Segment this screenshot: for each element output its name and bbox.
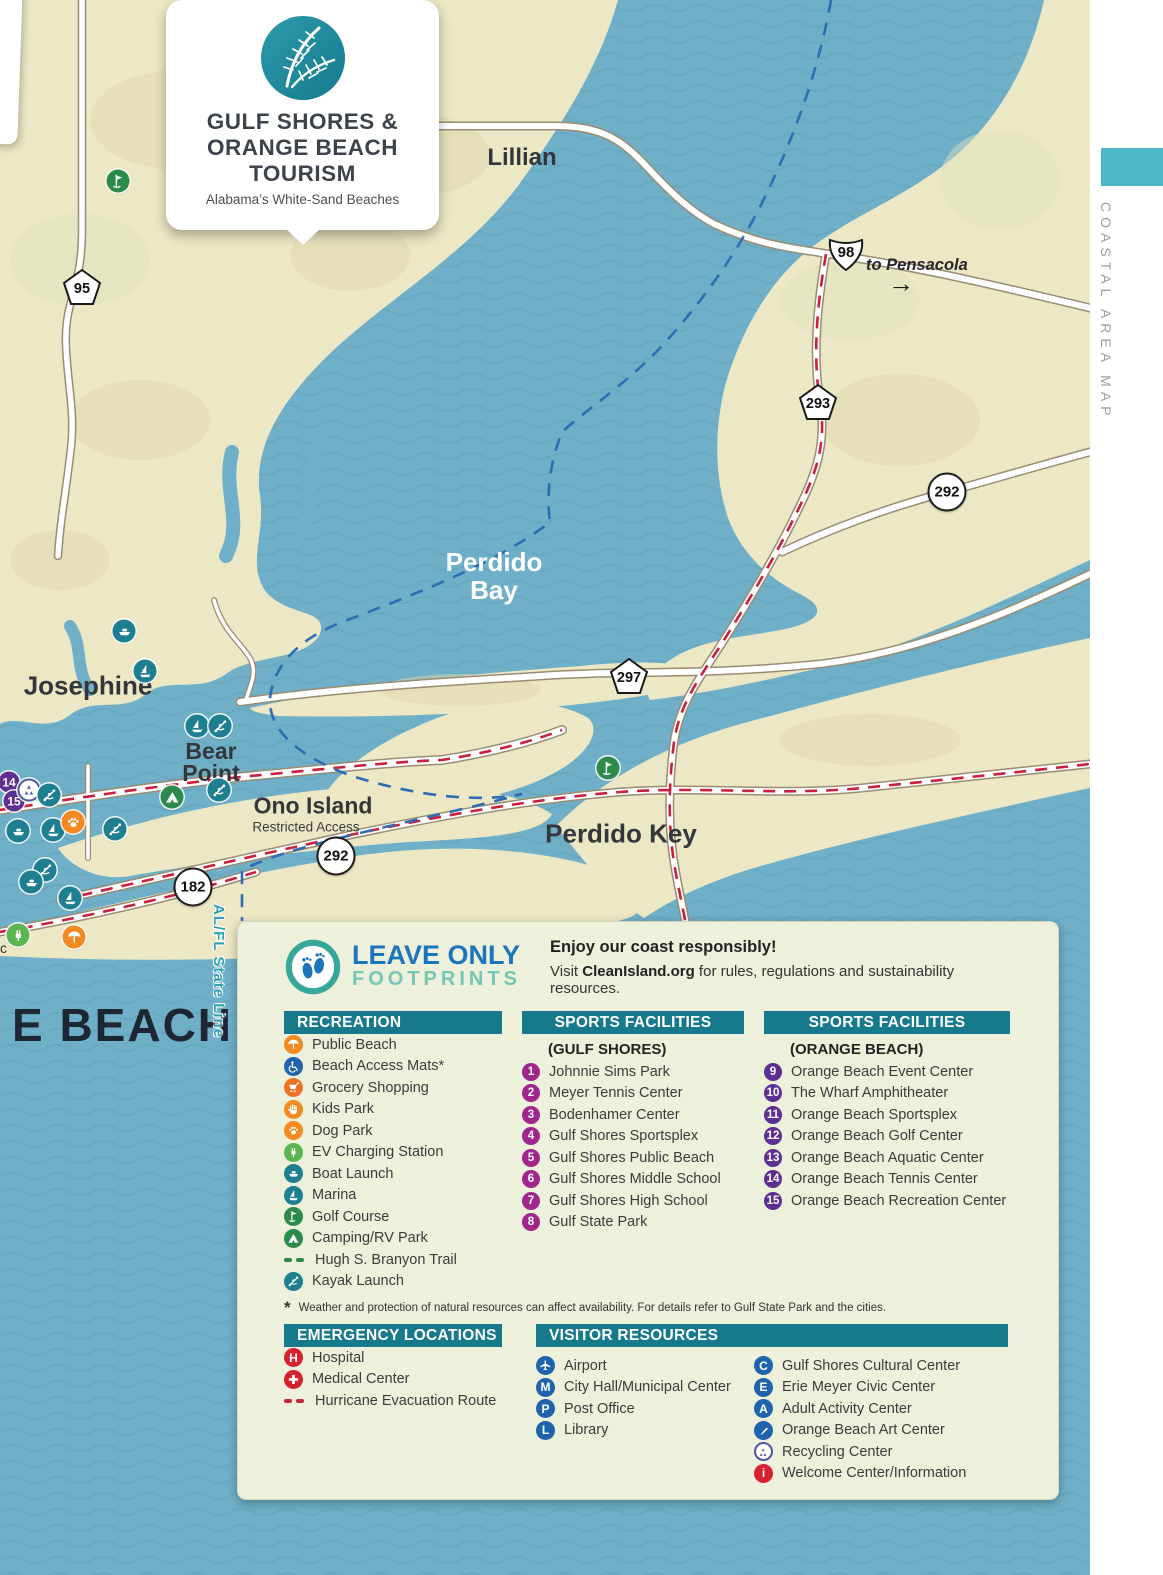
welcome-info-icon: i (754, 1464, 773, 1483)
legend-item: 7Gulf Shores High School (522, 1190, 744, 1212)
marker-2: 2 (522, 1084, 540, 1102)
golf-course-icon (597, 757, 620, 780)
leave-only-footprints-brand: LEAVE ONLY FOOTPRINTS (284, 938, 536, 996)
legend-item: Camping/RV Park (284, 1228, 502, 1250)
legend-section-gulf-shores: SPORTS FACILITIES (GULF SHORES) 1Johnnie… (522, 1011, 744, 1292)
kayak-launch-icon (208, 779, 231, 802)
map-legend-panel: LEAVE ONLY FOOTPRINTS Enjoy our coast re… (237, 921, 1059, 1500)
marker-11: 11 (764, 1106, 782, 1124)
civic-center-icon: E (754, 1378, 773, 1397)
legend-section-orange-beach: SPORTS FACILITIES (ORANGE BEACH) 9Orange… (764, 1011, 1010, 1292)
marker-13: 13 (764, 1149, 782, 1167)
pensacola-arrow-icon: → (888, 268, 914, 299)
legend-item: Medical Center (284, 1369, 502, 1391)
marker-9: 9 (764, 1063, 782, 1081)
legend-item: Golf Course (284, 1206, 502, 1228)
legend-item: 1Johnnie Sims Park (522, 1061, 744, 1083)
kayak-launch-icon (284, 1272, 303, 1291)
marker-12: 12 (764, 1127, 782, 1145)
boat-launch-icon (113, 620, 136, 643)
legend-item: Orange Beach Art Center (754, 1420, 1004, 1442)
legend-item: Hurricane Evacuation Route (284, 1390, 502, 1412)
medical-center-icon (284, 1370, 303, 1389)
legend-item: 9Orange Beach Event Center (764, 1061, 1010, 1083)
marker-10: 10 (764, 1084, 782, 1102)
badge-title-line3: TOURISM (166, 161, 439, 187)
legend-item: AAdult Activity Center (754, 1398, 1004, 1420)
orange-beach-subtitle: (ORANGE BEACH) (790, 1041, 1010, 1058)
legend-item: Boat Launch (284, 1163, 502, 1185)
golf-course-icon (284, 1207, 303, 1226)
legend-item: Recycling Center (754, 1441, 1004, 1463)
route-shield-95: 95 (62, 268, 102, 306)
airport-icon (536, 1356, 555, 1375)
legend-section-emergency: EMERGENCY LOCATIONS HHospital Medical Ce… (284, 1324, 502, 1484)
legend-item: 8Gulf State Park (522, 1212, 744, 1234)
route-shield-292-island: 292 (317, 837, 356, 876)
marina-icon (186, 715, 209, 738)
legend-item: Dog Park (284, 1120, 502, 1142)
brand-line2: FOOTPRINTS (352, 968, 521, 991)
label-ono-island: Ono Island (254, 793, 373, 820)
sea-oats-logo-icon (257, 12, 349, 104)
right-margin: COASTAL AREA MAP (1090, 0, 1163, 1575)
teal-accent-block (1101, 148, 1163, 186)
legend-item: 3Bodenhamer Center (522, 1104, 744, 1126)
library-icon: L (536, 1421, 555, 1440)
cleanisland-link: CleanIsland.org (582, 963, 695, 980)
marina-icon (134, 660, 157, 683)
map-canvas: GULF SHORES & ORANGE BEACH TOURISM Alaba… (0, 0, 1090, 1575)
label-to-pensacola: to Pensacola (866, 256, 968, 275)
gulf-shores-header: SPORTS FACILITIES (522, 1011, 744, 1034)
boat-launch-icon (284, 1164, 303, 1183)
legend-item: Beach Access Mats* (284, 1056, 502, 1078)
city-hall-icon: M (536, 1378, 555, 1397)
hurricane-route-icon (284, 1399, 306, 1403)
camping-rv-icon (284, 1229, 303, 1248)
route-shield-293: 293 (798, 383, 838, 421)
legend-item: Hugh S. Branyon Trail (284, 1249, 502, 1271)
art-center-icon (754, 1421, 773, 1440)
legend-item: EV Charging Station (284, 1142, 502, 1164)
public-beach-icon (63, 926, 86, 949)
public-beach-icon (284, 1035, 303, 1054)
route-shield-297: 297 (609, 657, 649, 695)
marina-icon (59, 887, 82, 910)
label-lillian: Lillian (487, 144, 556, 172)
label-perdido-key: Perdido Key (545, 819, 697, 850)
legend-item: 13Orange Beach Aquatic Center (764, 1147, 1010, 1169)
brand-line1: LEAVE ONLY (352, 942, 521, 968)
legend-intro: Enjoy our coast responsibly! Visit Clean… (550, 938, 1008, 997)
legend-item: CGulf Shores Cultural Center (754, 1355, 1004, 1377)
legend-footnote: * Weather and protection of natural reso… (284, 1302, 1008, 1314)
legend-item: LLibrary (536, 1420, 748, 1442)
label-perdido-bay: Perdido Bay (446, 548, 543, 604)
intro-bold-line: Enjoy our coast responsibly! (550, 938, 1008, 957)
coastal-area-map-page: GULF SHORES & ORANGE BEACH TOURISM Alaba… (0, 0, 1163, 1575)
kids-park-icon (284, 1100, 303, 1119)
coastal-area-map-title: COASTAL AREA MAP (1098, 202, 1114, 421)
branyon-trail-icon (284, 1258, 306, 1262)
marker-7: 7 (522, 1192, 540, 1210)
legend-item: 5Gulf Shores Public Beach (522, 1147, 744, 1169)
badge-title-line2: ORANGE BEACH (166, 135, 439, 161)
recycling-center-icon (754, 1442, 773, 1461)
legend-item: EErie Meyer Civic Center (754, 1377, 1004, 1399)
camping-rv-icon (161, 786, 184, 809)
marker-14: 14 (764, 1170, 782, 1188)
legend-item: MCity Hall/Municipal Center (536, 1377, 748, 1399)
marker-3: 3 (522, 1106, 540, 1124)
legend-item: HHospital (284, 1347, 502, 1369)
marker-4: 4 (522, 1127, 540, 1145)
post-office-icon: P (536, 1399, 555, 1418)
legend-item: 4Gulf Shores Sportsplex (522, 1126, 744, 1148)
legend-item: 15Orange Beach Recreation Center (764, 1190, 1010, 1212)
legend-item: Marina (284, 1185, 502, 1207)
legend-item: 11Orange Beach Sportsplex (764, 1104, 1010, 1126)
footprints-logo-icon (284, 938, 342, 996)
dog-park-icon (284, 1121, 303, 1140)
label-josephine: Josephine (24, 671, 153, 702)
legend-item: Public Beach (284, 1034, 502, 1056)
label-bear-point: Bear Point (182, 740, 240, 784)
marker-6: 6 (522, 1170, 540, 1188)
intro-second-line: Visit CleanIsland.org for rules, regulat… (550, 963, 1008, 997)
visitor-header: VISITOR RESOURCES (536, 1324, 1008, 1347)
hospital-icon: H (284, 1348, 303, 1367)
dog-park-icon (62, 811, 85, 834)
gulf-shores-subtitle: (GULF SHORES) (548, 1041, 744, 1058)
marker-8: 8 (522, 1213, 540, 1231)
adult-activity-icon: A (754, 1399, 773, 1418)
label-restricted-access: Restricted Access (252, 820, 359, 835)
beach-access-mats-icon (284, 1057, 303, 1076)
kayak-launch-icon (38, 784, 61, 807)
legend-item: 14Orange Beach Tennis Center (764, 1169, 1010, 1191)
legend-item: Airport (536, 1355, 748, 1377)
label-partial-text: c (0, 940, 7, 956)
emergency-header: EMERGENCY LOCATIONS (284, 1324, 502, 1347)
badge-title-line1: GULF SHORES & (166, 109, 439, 135)
route-shield-292-north: 292 (928, 473, 967, 512)
legend-item: 10The Wharf Amphitheater (764, 1083, 1010, 1105)
legend-item: PPost Office (536, 1398, 748, 1420)
legend-section-visitor: VISITOR RESOURCES Airport MCity Hall/Mun… (536, 1324, 1008, 1484)
grocery-shopping-icon (284, 1078, 303, 1097)
route-shield-98: 98 (826, 234, 866, 272)
legend-item: Grocery Shopping (284, 1077, 502, 1099)
cultural-center-icon: C (754, 1356, 773, 1375)
legend-item: 12Orange Beach Golf Center (764, 1126, 1010, 1148)
ev-charging-icon (7, 924, 30, 947)
legend-item: 6Gulf Shores Middle School (522, 1169, 744, 1191)
marina-icon (284, 1186, 303, 1205)
kayak-launch-icon (104, 818, 127, 841)
recreation-header: RECREATION (284, 1011, 502, 1034)
ev-charging-icon (284, 1143, 303, 1162)
label-orange-beach-partial: E BEACH (12, 998, 233, 1052)
badge-subtitle: Alabama’s White-Sand Beaches (166, 192, 439, 207)
legend-section-recreation: RECREATION Public Beach Beach Access Mat… (284, 1011, 502, 1292)
label-al-fl-state-line: AL/FL State Line (210, 904, 227, 1038)
legend-item: iWelcome Center/Information (754, 1463, 1004, 1485)
legend-item: Kids Park (284, 1099, 502, 1121)
golf-course-icon (107, 170, 130, 193)
boat-launch-icon (7, 820, 30, 843)
legend-header: LEAVE ONLY FOOTPRINTS Enjoy our coast re… (284, 936, 1008, 997)
kayak-launch-icon (209, 715, 232, 738)
tourism-logo-badge: GULF SHORES & ORANGE BEACH TOURISM Alaba… (166, 0, 439, 230)
marker-15: 15 (764, 1192, 782, 1210)
orange-beach-header: SPORTS FACILITIES (764, 1011, 1010, 1034)
marker-1: 1 (522, 1063, 540, 1081)
route-shield-182: 182 (174, 868, 213, 907)
legend-item: 2Meyer Tennis Center (522, 1083, 744, 1105)
marker-5: 5 (522, 1149, 540, 1167)
legend-item: Kayak Launch (284, 1271, 502, 1293)
boat-launch-icon (20, 871, 43, 894)
